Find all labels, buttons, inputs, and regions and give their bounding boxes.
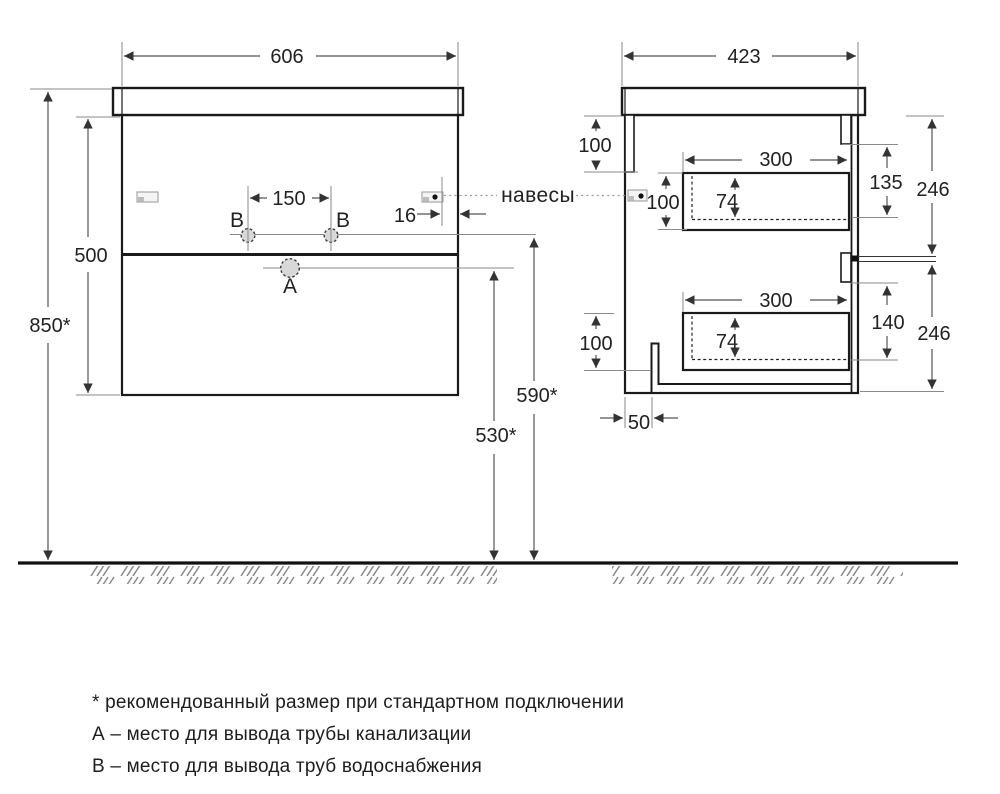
hanger-bracket-side	[628, 190, 647, 201]
upper-drawer-width-label: 300	[759, 149, 792, 171]
b-spacing-label: 150	[272, 188, 305, 210]
back-rail-height-label: 100	[578, 135, 611, 157]
hanger-bracket-left	[137, 192, 158, 202]
front-view: B B A 606 500 850*	[29, 42, 557, 560]
divider-joint	[852, 256, 859, 262]
floor-hatching-left	[88, 566, 497, 584]
lower-drawer-inner-height-label: 74	[716, 331, 738, 353]
front-countertop	[113, 88, 463, 115]
upper-section-height-label: 246	[916, 179, 949, 201]
pipe-offset-label: 50	[628, 412, 650, 434]
depth-label: 423	[727, 46, 760, 68]
hanger-point-dot	[638, 193, 643, 198]
hangers-callout: навесы	[444, 184, 627, 207]
floor-hatching-right	[612, 566, 903, 584]
footnotes: * рекомендованный размер при стандартном…	[92, 692, 852, 788]
label-b-right: B	[336, 209, 350, 232]
side-cabinet-body	[625, 115, 858, 393]
upper-front-offset-label: 135	[869, 172, 902, 194]
dim-depth: 423	[622, 42, 858, 86]
back-hanging-rail	[625, 115, 634, 172]
lower-front-offset-label: 140	[871, 312, 904, 334]
side-view: 423 100 300 100 74	[578, 42, 950, 434]
label-a: A	[283, 275, 297, 298]
upper-drawer-height-label: 100	[646, 192, 679, 214]
vanity-dimension-drawing: B B A 606 500 850*	[0, 0, 1000, 794]
note-a: А – место для вывода трубы канализации	[92, 724, 852, 745]
mount-height-label: 850*	[29, 315, 70, 337]
drain-height-label: 530*	[475, 425, 516, 447]
hangers-callout-label: навесы	[501, 184, 575, 207]
front-mid-rail	[841, 253, 851, 282]
dim-front-width: 606	[122, 42, 458, 86]
dim-upper-section-height: 246	[906, 116, 950, 254]
note-asterisk: * рекомендованный размер при стандартном…	[92, 692, 852, 713]
side-countertop	[622, 88, 865, 115]
hanger-point-dot	[432, 194, 437, 199]
lower-section-height-label: 246	[917, 323, 950, 345]
note-b: В – место для вывода труб водоснабжения	[92, 756, 852, 777]
body-height-label: 500	[74, 245, 107, 267]
upper-drawer-inner-height-label: 74	[716, 191, 738, 213]
supply-height-label: 590*	[516, 385, 557, 407]
bracket-offset-label: 16	[394, 205, 416, 227]
hanger-bracket-right	[422, 192, 443, 202]
drawing-canvas: B B A 606 500 850*	[0, 0, 1000, 640]
dim-supply-height: 590*	[516, 238, 557, 560]
dim-mount-height: 850*	[29, 89, 112, 560]
dim-pipe-offset: 50	[600, 397, 678, 434]
front-width-label: 606	[270, 46, 303, 68]
front-top-rail	[841, 115, 851, 144]
lower-drawer-height-label: 100	[579, 333, 612, 355]
floor	[18, 563, 958, 584]
dim-drain-height: 530*	[475, 271, 516, 560]
label-b-left: B	[230, 209, 244, 232]
lower-drawer-width-label: 300	[759, 290, 792, 312]
dim-body-height: 500	[74, 117, 120, 395]
